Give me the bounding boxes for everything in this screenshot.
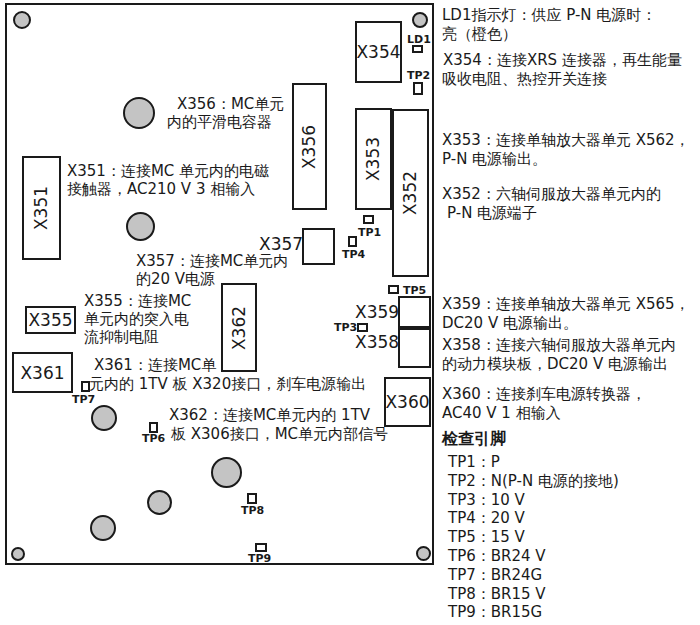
connector-x352-label: X352 (401, 171, 421, 215)
tp5-marker (388, 285, 399, 294)
note-x357-line2: 的20 V电源 (136, 270, 215, 289)
tp3-marker (357, 323, 368, 332)
connector-x362-label: X362 (229, 305, 249, 349)
legend-ld1-line1: LD1指示灯：供应 P-N 电源时： (442, 6, 656, 25)
legend-x353-line2: P-N 电源输出。 (442, 150, 547, 169)
legend-x358-line2: 的动力模块板，DC20 V 电源输出 (442, 355, 668, 374)
pin-line-tp3: TP3：10 V (448, 491, 525, 510)
note-x351-line2: 接触器，AC210 V 3 相输入 (67, 180, 255, 199)
legend-x358-line1: X358：连接六轴伺服放大器单元内 (442, 336, 676, 355)
mounting-hole-bottom-right (416, 546, 431, 561)
capacitor-circle-5 (147, 490, 172, 515)
connector-x355-label: X355 (28, 310, 72, 330)
tp7-label: TP7 (72, 393, 95, 406)
connector-x362: X362 (221, 283, 257, 372)
label-x359: X359 (355, 302, 399, 322)
pin-line-tp6: TP6：BR24 V (448, 547, 546, 566)
capacitor-circle-1 (123, 97, 155, 129)
note-x355-line3: 流抑制电阻 (84, 328, 159, 347)
legend-x354-line2: 吸收电阻、热控开关连接 (442, 70, 607, 89)
mounting-hole-bottom-left (11, 547, 25, 561)
pin-line-tp4: TP4：20 V (448, 509, 525, 528)
capacitor-circle-6 (90, 515, 116, 541)
legend-ld1-line2: 亮（橙色） (442, 25, 517, 44)
pin-line-tp9: TP9：BR15G (448, 603, 542, 622)
connector-x360: X360 (384, 377, 431, 427)
tp4-label: TP4 (342, 248, 365, 261)
note-x356-line1: X356：MC单元 (177, 95, 284, 114)
note-x355-line2: 单元内的突入电 (84, 310, 189, 329)
note-x355-line1: X355：连接MC (84, 292, 191, 311)
tp4-marker (348, 236, 357, 247)
note-x361-line2: 元内的 1TV 板 X320接口，刹车电源输出 (89, 375, 366, 394)
tp3-label: TP3 (334, 321, 357, 334)
mounting-hole-top-left (13, 11, 31, 29)
connector-x361: X361 (12, 352, 73, 393)
connector-x354-label: X354 (356, 42, 400, 62)
note-x357-line1: X357：连接MC单元内 (136, 252, 288, 271)
note-x356-line2: 内的平滑电容器 (167, 113, 272, 132)
legend-x360-line2: AC40 V 1 相输入 (442, 404, 561, 423)
ld1-indicator (412, 45, 423, 53)
tp5-label: TP5 (403, 284, 426, 297)
connector-x355: X355 (25, 306, 76, 334)
connector-x356: X356 (292, 83, 327, 210)
connector-x354: X354 (355, 21, 402, 83)
tp9-label: TP9 (248, 552, 271, 565)
connector-x352: X352 (392, 109, 429, 277)
capacitor-circle-4 (211, 457, 242, 488)
pin-line-tp1: TP1：P (448, 453, 500, 472)
connector-x357-box (302, 228, 335, 265)
legend-x359-line1: X359：连接单轴放大器单元 X565， (442, 295, 690, 314)
tp2-marker (413, 82, 423, 95)
connector-x353: X353 (355, 108, 392, 210)
check-pins-header: 检查引脚 (442, 429, 506, 450)
connector-x351: X351 (22, 156, 61, 260)
pin-line-tp5: TP5：15 V (448, 528, 525, 547)
connector-x360-label: X360 (385, 392, 429, 412)
connector-x353-label: X353 (364, 137, 384, 181)
legend-x352-line2: P-N 电源端子 (447, 204, 537, 223)
connector-x351-label: X351 (32, 186, 52, 230)
tp2-label: TP2 (407, 69, 430, 82)
note-x361-line1: X361：连接MC单 (94, 356, 216, 375)
tp1-marker (363, 215, 374, 224)
pin-line-tp7: TP7：BR24G (448, 566, 542, 585)
note-x362-line2: 板 X306接口，MC单元内部信号 (171, 425, 388, 444)
connector-x359-box (398, 296, 431, 328)
mounting-hole-top-right (412, 12, 428, 28)
tp8-marker (247, 493, 257, 504)
label-x357: X357 (259, 234, 303, 254)
tp1-label: TP1 (358, 226, 381, 239)
label-x358: X358 (355, 332, 399, 352)
tp6-label: TP6 (142, 432, 165, 445)
capacitor-circle-3 (91, 405, 117, 431)
pin-line-tp8: TP8：BR15 V (448, 585, 546, 604)
legend-x360-line1: X360：连接刹车电源转换器， (442, 385, 646, 404)
note-x351-line1: X351：连接MC 单元内的电磁 (67, 162, 269, 181)
legend-x353-line1: X353：连接单轴放大器单元 X562， (442, 131, 690, 150)
tp9-marker (255, 543, 267, 552)
connector-x361-label: X361 (20, 363, 64, 383)
connector-x356-label: X356 (300, 124, 320, 168)
mc-unit-board-diagram: X351 X354 X356 X353 X352 X362 X355 X361 … (0, 0, 700, 625)
legend-x354-line1: X354：连接XRS 连接器，再生能量 (443, 51, 682, 70)
tp8-label: TP8 (241, 504, 264, 517)
legend-x352-line1: X352：六轴伺服放大器单元内的 (442, 185, 661, 204)
capacitor-circle-2 (126, 212, 155, 241)
note-x362-line1: X362：连接MC单元内的 1TV (169, 406, 370, 425)
connector-x358-box (398, 328, 431, 368)
pin-line-tp2: TP2：N(P-N 电源的接地) (448, 472, 619, 491)
legend-x359-line2: DC20 V 电源输出。 (442, 314, 578, 333)
